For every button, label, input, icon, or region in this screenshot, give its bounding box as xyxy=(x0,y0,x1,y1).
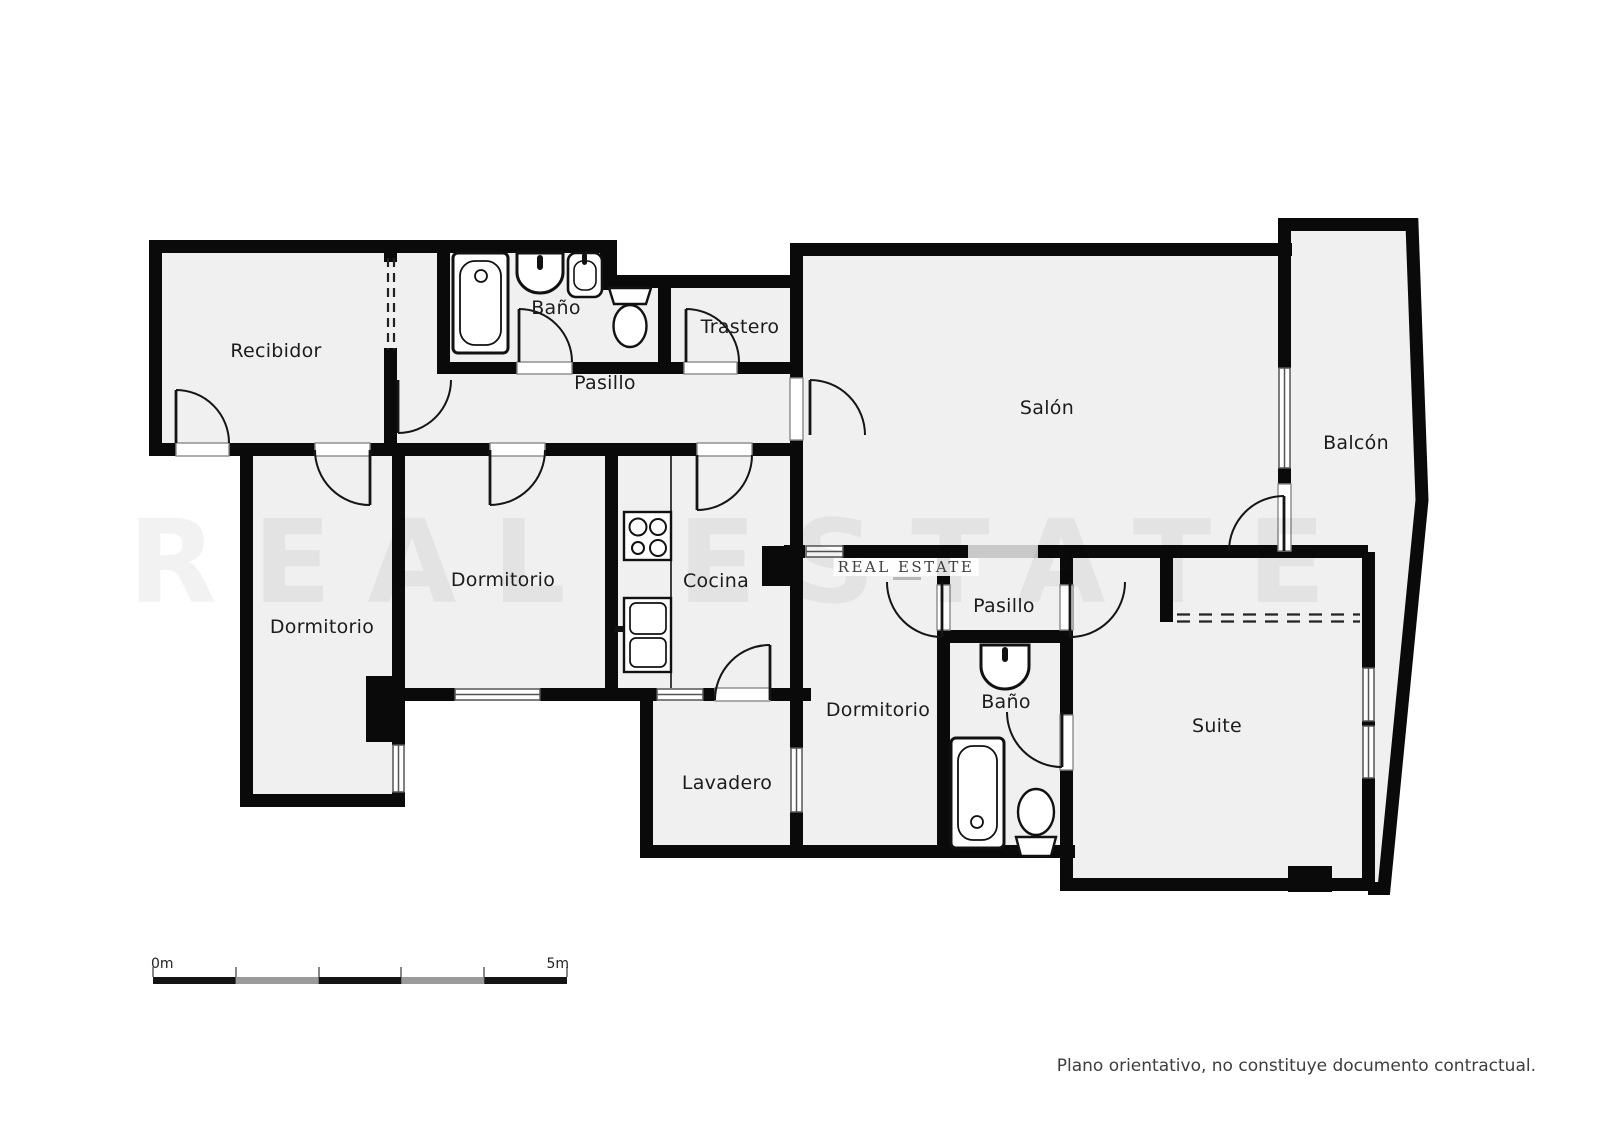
room-label-pasillo-2: Pasillo xyxy=(973,595,1035,617)
room-label-dormitorio-1: Dormitorio xyxy=(270,616,374,638)
disclaimer-text: Plano orientativo, no constituye documen… xyxy=(1057,1056,1536,1076)
room-label-dormitorio-3: Dormitorio xyxy=(826,699,930,721)
room-label-lavadero: Lavadero xyxy=(682,772,772,794)
room-label-suite: Suite xyxy=(1192,715,1242,737)
floor-plan-drawing xyxy=(0,0,1600,1132)
pillar xyxy=(1288,866,1332,892)
pillar xyxy=(762,546,792,586)
room-label-recibidor: Recibidor xyxy=(230,340,321,362)
bathtub-icon xyxy=(453,253,508,353)
pillar xyxy=(366,676,405,742)
window xyxy=(806,546,843,557)
floor-plan-page: REAL ESTATE REAL ESTATE Recibidor Baño T… xyxy=(0,0,1600,1132)
room-label-bano-2: Baño xyxy=(981,691,1031,713)
window xyxy=(1363,668,1374,721)
toilet-icon xyxy=(1016,789,1056,856)
room-label-trastero: Trastero xyxy=(701,316,780,338)
open-passage xyxy=(968,545,1038,558)
watermark-tagline-smudge xyxy=(893,577,921,580)
room-label-cocina: Cocina xyxy=(683,570,749,592)
washbasin-icon xyxy=(981,645,1029,689)
room-label-salon: Salón xyxy=(1020,397,1074,419)
scale-end-label: 5m xyxy=(546,956,569,972)
window xyxy=(791,748,802,812)
scale-start-label: 0m xyxy=(151,956,174,972)
room-label-dormitorio-2: Dormitorio xyxy=(451,569,555,591)
window xyxy=(1363,726,1374,778)
bathtub-icon xyxy=(951,738,1004,848)
window xyxy=(393,745,404,792)
washbasin-icon xyxy=(568,253,602,297)
window xyxy=(657,689,703,700)
watermark-brand-text: REAL ESTATE xyxy=(834,558,979,576)
room-label-bano-1: Baño xyxy=(531,297,581,319)
kitchen-cabinet-icon xyxy=(615,598,671,672)
room-label-pasillo-1: Pasillo xyxy=(574,372,636,394)
stove-icon xyxy=(624,512,671,560)
room-label-balcon: Balcón xyxy=(1323,432,1389,454)
window xyxy=(1279,368,1290,468)
scale-bar xyxy=(153,967,567,984)
washbasin-icon xyxy=(517,253,563,293)
toilet-icon xyxy=(609,288,651,347)
window xyxy=(455,689,540,700)
